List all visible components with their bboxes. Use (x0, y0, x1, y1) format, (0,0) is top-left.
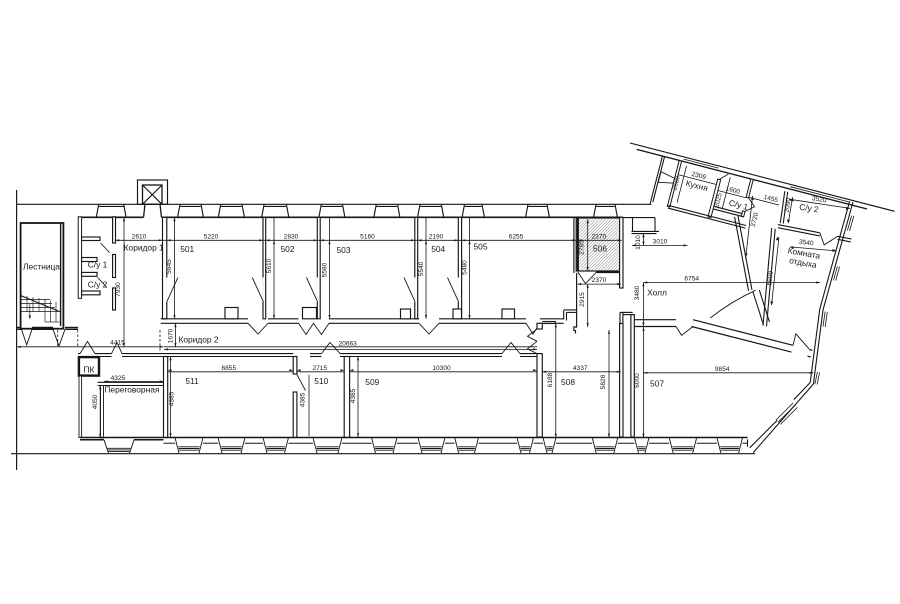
svg-text:4325: 4325 (111, 375, 126, 382)
svg-text:511: 511 (185, 376, 199, 386)
svg-text:5540: 5540 (418, 261, 425, 276)
svg-text:3480: 3480 (634, 285, 641, 300)
svg-text:4337: 4337 (573, 365, 588, 372)
svg-text:4415: 4415 (110, 339, 125, 346)
svg-text:2785: 2785 (579, 240, 586, 255)
svg-text:4385: 4385 (168, 391, 175, 406)
svg-text:2915: 2915 (579, 292, 586, 307)
svg-text:2370: 2370 (591, 233, 606, 240)
svg-text:10300: 10300 (432, 365, 451, 372)
svg-text:6000: 6000 (634, 373, 641, 388)
svg-text:3720: 3720 (750, 212, 761, 228)
svg-text:2715: 2715 (312, 365, 327, 372)
svg-text:20663: 20663 (339, 341, 358, 348)
svg-text:5580: 5580 (321, 262, 328, 277)
svg-text:С/у 2: С/у 2 (799, 202, 820, 215)
svg-text:5828: 5828 (600, 374, 607, 389)
svg-text:4385: 4385 (299, 392, 306, 407)
svg-text:507: 507 (650, 379, 664, 389)
svg-text:1670: 1670 (167, 328, 174, 343)
svg-text:2090: 2090 (784, 197, 793, 213)
svg-text:С/у 1: С/у 1 (728, 197, 750, 212)
svg-text:6255: 6255 (509, 233, 524, 240)
svg-text:3540: 3540 (798, 239, 814, 248)
svg-text:510: 510 (314, 376, 328, 386)
svg-text:Коридор 1: Коридор 1 (124, 243, 164, 253)
svg-text:506: 506 (593, 244, 607, 254)
svg-text:7930: 7930 (115, 282, 122, 297)
svg-text:Кухня: Кухня (685, 178, 709, 193)
svg-text:5220: 5220 (204, 233, 219, 240)
svg-text:6855: 6855 (221, 365, 236, 372)
svg-text:2190: 2190 (429, 233, 444, 240)
svg-text:ПК: ПК (83, 365, 94, 375)
svg-text:3010: 3010 (653, 238, 668, 245)
svg-text:502: 502 (281, 244, 295, 254)
svg-text:1010: 1010 (635, 235, 642, 250)
svg-text:6188: 6188 (547, 372, 554, 387)
svg-text:2610: 2610 (132, 233, 147, 240)
svg-text:505: 505 (474, 242, 488, 252)
svg-text:501: 501 (180, 244, 194, 254)
svg-text:2830: 2830 (284, 233, 299, 240)
svg-text:5160: 5160 (360, 233, 375, 240)
svg-text:Холл: Холл (647, 288, 667, 298)
svg-text:5610: 5610 (266, 258, 273, 273)
svg-text:508: 508 (561, 377, 575, 387)
svg-text:Переговорная: Переговорная (104, 385, 159, 395)
svg-text:Коридор 2: Коридор 2 (178, 335, 218, 345)
svg-text:4050: 4050 (92, 394, 99, 409)
svg-text:509: 509 (365, 377, 379, 387)
svg-text:5480: 5480 (461, 260, 468, 275)
svg-text:5645: 5645 (166, 259, 173, 274)
svg-text:4385: 4385 (350, 388, 357, 403)
svg-text:2370: 2370 (592, 277, 607, 284)
svg-text:6754: 6754 (684, 275, 699, 282)
svg-text:С/у 2: С/у 2 (88, 280, 108, 290)
svg-text:504: 504 (431, 244, 445, 254)
svg-text:С/у 1: С/у 1 (88, 260, 108, 270)
svg-text:503: 503 (337, 245, 351, 255)
svg-text:Лестница: Лестница (23, 262, 60, 272)
svg-text:9854: 9854 (715, 366, 730, 373)
